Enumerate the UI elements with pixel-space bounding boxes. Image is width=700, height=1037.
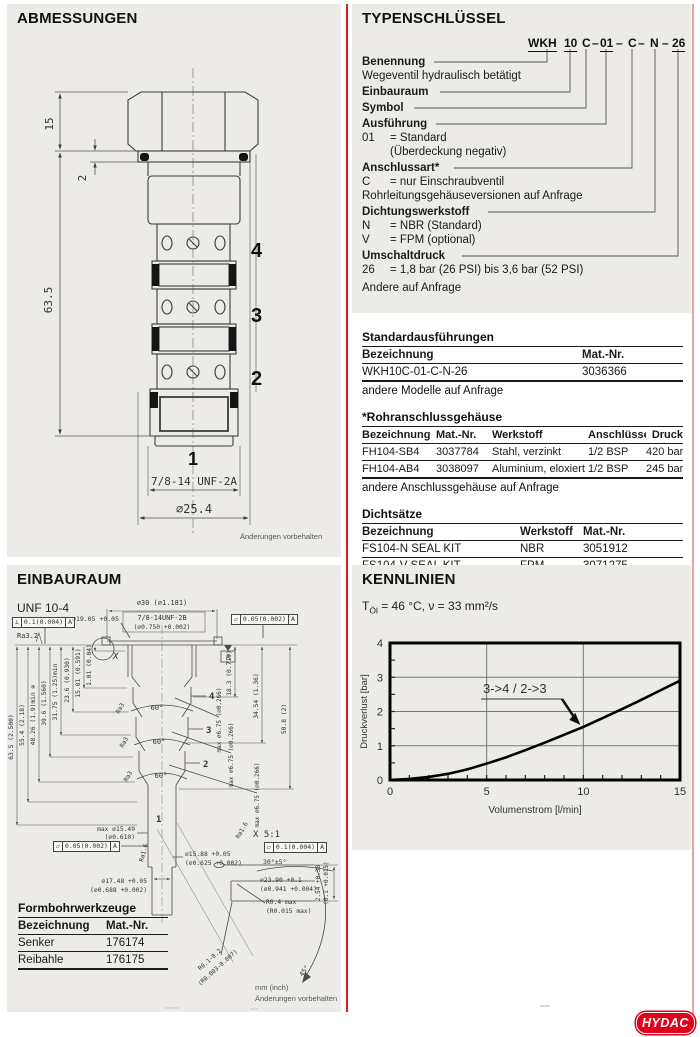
footer-ghost-mark — [250, 1008, 258, 1010]
standard-table-title: Standardausführungen — [362, 330, 683, 347]
gdt-frame-flatness-detail: ▱0.1(0.004)A — [264, 842, 327, 853]
einbauraum-panel: ⌀30 (⌀1.181) 7/8-14UNF-2B (⌀0.750 +0.002… — [7, 565, 341, 1012]
benennung-label: Benennung — [362, 56, 425, 68]
kennlinien-panel: KENNLINIEN TÖl = 46 °C, ν = 33 mm²/s 051… — [352, 565, 691, 850]
cross-hole-dim: max ⌀6.75 (⌀0.266) — [254, 762, 261, 827]
y-tick-label: 2 — [377, 707, 383, 719]
standard-table: BezeichnungMat.-Nr.WKH10C-01-C-N-2630363… — [362, 347, 683, 382]
table-cell: NBR — [520, 541, 583, 558]
dim-seal-thickness: 2 — [76, 175, 89, 182]
condition-subscript: Öl — [369, 605, 378, 615]
gdt-datum: A — [289, 615, 297, 624]
dichtung-key1: N — [362, 220, 370, 232]
umschaltdruck-label: Umschaltdruck — [362, 250, 445, 262]
gdt-value: 0.05(0.002) — [241, 615, 289, 624]
depth-dim: 1.01 (0.04) — [86, 644, 93, 686]
thread-callout: 7/8-14 UNF-2A — [151, 475, 237, 488]
code-connection: C — [628, 36, 637, 50]
umschaltdruck-key: 26 — [362, 264, 375, 276]
code-version: 01 — [600, 36, 613, 52]
y-axis-label: Druckverlust [bar] — [359, 674, 370, 748]
depth-dim: 39.6 (1.560) — [41, 680, 48, 726]
code-pressure: 26 — [672, 36, 685, 52]
datasheet-page: ABMESSUNGEN — [0, 0, 700, 1037]
depth-dim: 31.75 (1.25)min — [52, 663, 59, 720]
construction-lines — [157, 823, 253, 962]
depth-dim: 48.26 (1.9)min ⊕ — [30, 684, 37, 745]
gehaeuse-table-title: *Rohranschlussgehäuse — [362, 410, 683, 427]
port-3-label: 3 — [251, 305, 262, 327]
table-cell: WKH10C-01-C-N-26 — [362, 364, 582, 382]
x-tick-label: 5 — [484, 786, 490, 798]
pressure-drop-chart: 05101501234Volumenstrom [l/min]Druckverl… — [357, 619, 689, 849]
bore-dim: ⌀19.05 +0.05 — [72, 615, 119, 623]
dim-body-length: 63.5 — [42, 287, 55, 314]
typenschluessel-panel: TYPENSCHLÜSSEL WKH 10 C – 01 – C – N – 2… — [352, 4, 691, 313]
port-1-label: 1 — [188, 449, 198, 469]
table-header: Mat.-Nr. — [583, 524, 683, 541]
annotation-text: 3->4 / 2->3 — [483, 681, 547, 696]
dichtsaetze-table-title: Dichtsätze — [362, 507, 683, 524]
table-cell: Stahl, verzinkt — [492, 444, 588, 461]
table-cell: Senker — [18, 935, 106, 952]
code-size: 10 — [564, 36, 577, 52]
x-tick-label: 0 — [387, 786, 393, 798]
y-tick-label: 3 — [377, 672, 383, 684]
surface-finish-ra16: Ra1.6 — [235, 821, 250, 840]
gdt-value: 0.05(0.002) — [63, 842, 111, 851]
tooling-table-block: Formbohrwerkzeuge BezeichnungMat.-Nr.Sen… — [18, 901, 168, 970]
anschlussart-label: Anschlussart* — [362, 162, 439, 174]
footer-ghost-mark — [165, 1007, 179, 1009]
kennlinien-title: KENNLINIEN — [362, 571, 456, 588]
chamfer-angle: 60° — [153, 738, 166, 746]
cavity-thread-inch: (⌀0.750 +0.002) — [134, 624, 191, 631]
x-tick-label: 15 — [674, 786, 686, 798]
cavity-port-4: 4 — [209, 692, 215, 702]
gdt-datum: A — [66, 618, 74, 627]
gdt-symbol: ⊥ — [13, 618, 22, 627]
table-header: Werkstoff — [492, 427, 588, 444]
table-header: Mat.-Nr. — [582, 347, 683, 364]
code-dash: – — [638, 36, 645, 50]
werkzeuge-table: BezeichnungMat.-Nr.Senker176174Reibahle1… — [18, 918, 168, 970]
code-dash: – — [616, 36, 623, 50]
cavity-thread: 7/8-14UNF-2B — [137, 614, 186, 622]
gehaeuse-table-note: andere Anschlussgehäuse auf Anfrage — [362, 479, 683, 494]
ausfuehrung-value2: (Überdeckung negativ) — [390, 146, 506, 158]
footer-ghost-mark — [540, 1005, 550, 1007]
depth-dim: 23.6 (0.930) — [64, 657, 71, 703]
cavity-port-1: 1 — [156, 815, 161, 825]
dichtung-value2: = FPM (optional) — [390, 234, 475, 246]
spotface-dim: ⌀30 (⌀1.181) — [137, 599, 188, 607]
gdt-frame-flatness-stem: ▱0.05(0.002)A — [53, 841, 120, 852]
cavity-port-2: 2 — [203, 760, 208, 770]
gdt-value: 0.1(0.004) — [274, 843, 318, 852]
einbauraum-label: Einbauraum — [362, 86, 428, 98]
stem-max-dia-inch: (⌀0.610) — [105, 834, 135, 841]
dichtung-value1: = NBR (Standard) — [390, 220, 482, 232]
gdt-datum: A — [318, 843, 326, 852]
anschlussart-value: = nur Einschraubventil — [390, 176, 504, 188]
table-header: Mat.-Nr. — [106, 918, 168, 935]
hydac-logo: HYDAC — [636, 1012, 695, 1034]
code-series: WKH — [528, 36, 557, 52]
ausfuehrung-key: 01 — [362, 132, 375, 144]
code-dash: – — [592, 36, 599, 50]
table-cell: 176175 — [106, 952, 168, 970]
table-row: WKH10C-01-C-N-263036366 — [362, 364, 683, 382]
port-depth-dim: 50.8 (2) — [281, 704, 288, 734]
cross-hole-dim: max ⌀6.75 (⌀0.266) — [216, 687, 223, 752]
surface-finish-ra3: Ra3 — [123, 770, 135, 783]
chamfer-angle: 60° — [155, 772, 168, 780]
einbauraum-title: EINBAURAUM — [17, 571, 122, 588]
anschlussart-key: C — [362, 176, 370, 188]
detail-angle-30: 30°±5° — [263, 858, 286, 866]
table-cell: 1/2 BSP — [588, 444, 646, 461]
table-cell: 176174 — [106, 935, 168, 952]
column-divider — [346, 4, 348, 1012]
cross-hole-dim: max ⌀6.75 (⌀0.266) — [228, 722, 235, 787]
revision-note: Änderungen vorbehalten — [255, 994, 337, 1003]
table-header: Druck — [646, 427, 683, 444]
detail-radius-04-inch: (R0.015 max) — [266, 908, 312, 915]
benennung-desc: Wegeventil hydraulisch betätigt — [362, 70, 521, 82]
table-row: FH104-AB43038097Aluminium, eloxiert1/2 B… — [362, 461, 683, 479]
condition-text: = 46 °C, ν = 33 mm²/s — [381, 599, 498, 613]
table-header: Werkstoff — [520, 524, 583, 541]
table-cell: 3037784 — [436, 444, 492, 461]
seal-rings — [140, 153, 248, 408]
abmessungen-title: ABMESSUNGEN — [17, 10, 138, 27]
detail-dia-2390: ⌀23.90 +0.1 — [260, 877, 302, 884]
stem-dia-1588: ⌀15.88 +0.05 — [185, 851, 231, 858]
port-2-label: 2 — [251, 368, 262, 390]
detail-depth-dim: 2.54 +0.38 — [315, 865, 322, 902]
dichtung-key2: V — [362, 234, 370, 246]
table-cell: 3038097 — [436, 461, 492, 479]
code-dash: – — [662, 36, 669, 50]
table-cell: Reibahle — [18, 952, 106, 970]
detail-mark: X — [112, 652, 119, 662]
x-axis-label: Volumenstrom [l/min] — [488, 805, 582, 816]
surface-finish-ra3: Ra3 — [115, 702, 127, 715]
table-row: Reibahle176175 — [18, 952, 168, 970]
gdt-symbol: ▱ — [232, 615, 241, 624]
units-note: mm (inch) — [255, 983, 288, 992]
diameter-callout: ⌀25.4 — [176, 502, 212, 516]
table-cell: FH104-AB4 — [362, 461, 436, 479]
depth-dim: 55.4 (2.18) — [19, 704, 26, 746]
table-header: Anschlüsse — [588, 427, 646, 444]
table-cell: 3051912 — [583, 541, 683, 558]
annotation-arrowhead — [569, 713, 580, 725]
table-cell: 420 bar — [646, 444, 683, 461]
depth-dim: 15.01 (0.591) — [75, 648, 82, 697]
table-cell: 245 bar — [646, 461, 683, 479]
gdt-symbol: ▱ — [265, 843, 274, 852]
umschaltdruck-note: Andere auf Anfrage — [362, 282, 461, 294]
stem-dia-1748-inch: (⌀0.688 +0.002) — [90, 887, 147, 894]
gdt-datum: A — [111, 842, 119, 851]
table-cell: 3036366 — [582, 364, 683, 382]
table-cell: Aluminium, eloxiert — [492, 461, 588, 479]
symbol-label: Symbol — [362, 102, 404, 114]
y-tick-label: 0 — [377, 775, 383, 787]
standard-table-note: andere Modelle auf Anfrage — [362, 382, 683, 397]
ausfuehrung-value: = Standard — [390, 132, 447, 144]
umschaltdruck-value: = 1,8 bar (26 PSI) bis 3,6 bar (52 PSI) — [390, 264, 583, 276]
gehaeuse-table: BezeichnungMat.-Nr.WerkstoffAnschlüsseDr… — [362, 427, 683, 479]
code-symbol: C — [582, 36, 591, 50]
page-edge-line — [692, 4, 694, 1032]
gdt-frame-perpendicularity: ⊥0.1(0.004)A — [12, 617, 75, 628]
depth-dim: 63.5 (2.500) — [8, 714, 15, 760]
dim-head-height: 15 — [43, 117, 56, 130]
dichtung-label: Dichtungswerkstoff — [362, 206, 469, 218]
ordering-tables: Standardausführungen BezeichnungMat.-Nr.… — [362, 330, 683, 576]
cavity-port-3: 3 — [206, 726, 211, 736]
abmessungen-panel: ABMESSUNGEN — [7, 4, 341, 557]
detail-depth-dim-inch: (0.1 +0.015) — [323, 861, 330, 904]
code-seal: N — [650, 36, 659, 50]
table-header: Bezeichnung — [362, 347, 582, 364]
table-cell: 1/2 BSP — [588, 461, 646, 479]
y-tick-label: 1 — [377, 741, 383, 753]
port-4-label: 4 — [251, 240, 263, 262]
dimension-lines — [55, 92, 256, 525]
detail-radius-04: R0.4 max — [266, 899, 297, 906]
valve-dimension-drawing: 15 2 63.5 4 3 2 1 7/8-14 UNF-2A ⌀25.4 — [7, 28, 341, 557]
table-header: Bezeichnung — [18, 918, 106, 935]
x-tick-label: 10 — [577, 786, 589, 798]
table-row: FS104-N SEAL KITNBR3051912 — [362, 541, 683, 558]
einbauraum-subtitle: UNF 10-4 — [17, 601, 69, 615]
table-cell: FH104-SB4 — [362, 444, 436, 461]
stem-dia-1748: ⌀17.48 +0.05 — [102, 878, 148, 885]
test-condition: TÖl = 46 °C, ν = 33 mm²/s — [362, 599, 498, 615]
surface-finish-ra32: Ra3.2 — [17, 632, 38, 640]
detail-title: X 5:1 — [253, 830, 280, 840]
detail-dia-2390-inch: (⌀0.941 +0.004) — [260, 886, 317, 893]
y-tick-label: 4 — [377, 638, 383, 650]
revision-note: Änderungen vorbehalten — [240, 532, 322, 541]
chamfer-angle: 60° — [151, 704, 164, 712]
hydac-logo-text: HYDAC — [642, 1016, 689, 1030]
anschlussart-note: Rohrleitungsgehäuseversionen auf Anfrage — [362, 190, 583, 202]
table-cell: FS104-N SEAL KIT — [362, 541, 520, 558]
gdt-value: 0.1(0.004) — [22, 618, 66, 627]
surface-finish-ra3: Ra3 — [119, 736, 131, 749]
table-row: FH104-SB43037784Stahl, verzinkt1/2 BSP42… — [362, 444, 683, 461]
gdt-symbol: ▱ — [54, 842, 63, 851]
table-row: Senker176174 — [18, 935, 168, 952]
table-header: Mat.-Nr. — [436, 427, 492, 444]
port-depth-dim: 34.54 (1.36) — [253, 673, 260, 719]
ausfuehrung-label: Ausführung — [362, 118, 427, 130]
stem-max-dia: max ⌀15.49 — [97, 826, 135, 833]
werkzeuge-table-title: Formbohrwerkzeuge — [18, 901, 168, 918]
table-header: Bezeichnung — [362, 427, 436, 444]
table-header: Bezeichnung — [362, 524, 520, 541]
gdt-frame-flatness-top: ▱0.05(0.002)A — [231, 614, 298, 625]
stem-dia-1588-inch: (⌀0.625 +0.002) — [185, 860, 242, 867]
